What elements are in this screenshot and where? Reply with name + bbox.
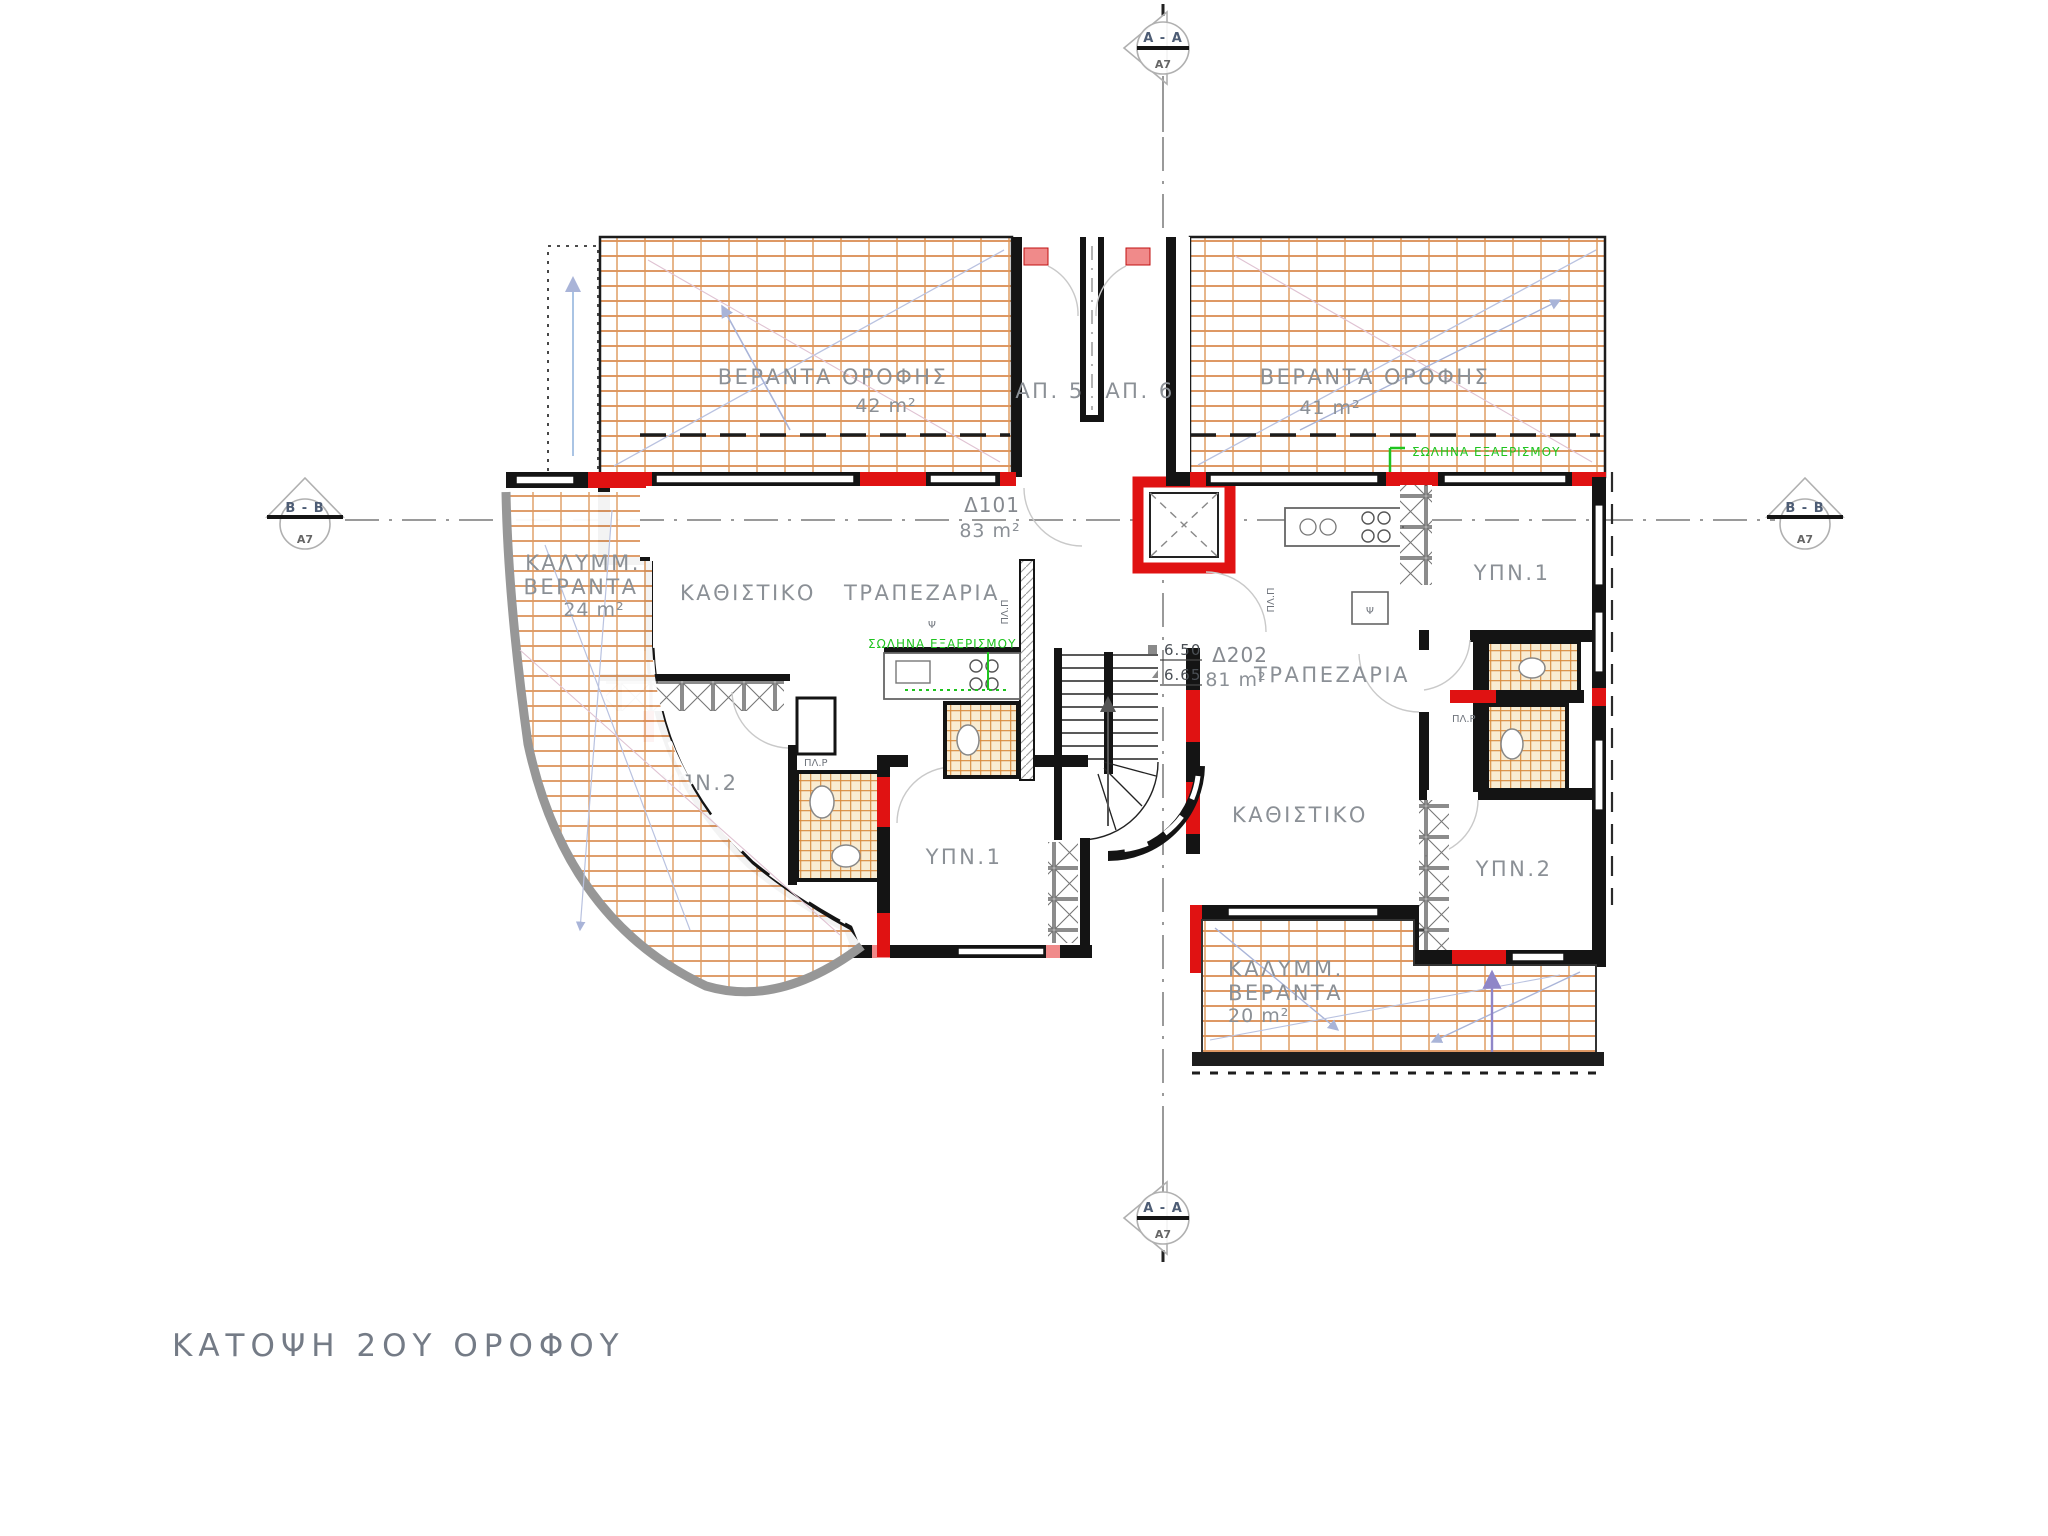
open-strip-dashed — [548, 246, 598, 475]
washing-machine-right-label: ΠΛ.Ρ — [1452, 714, 1476, 725]
covered-veranda-left-area: 24 m² — [563, 599, 624, 621]
d101-code: Δ101 — [964, 493, 1020, 517]
section-marker-aa-top: A - A A7 — [1124, 4, 1189, 132]
roof-veranda-right-label: ΒΕΡΑΝΤΑ ΟΡΟΦΗΣ — [1260, 365, 1491, 389]
d101-area: 83 m² — [959, 520, 1020, 542]
roof-veranda-right-area: 41 m² — [1299, 397, 1360, 419]
elevator-shaft — [1138, 482, 1230, 568]
washing-machine-left-label: ΠΛ.Ρ — [804, 758, 828, 769]
kitchen-d101: Ψ ΠΛ.Π ΣΩΛΗΝΑ ΕΞΑΕΡΙΣΜΟΥ — [868, 599, 1020, 699]
covered-veranda-left-line2: ΒΕΡΑΝΤΑ — [523, 575, 638, 599]
floor-plan-canvas: ΒΕΡΑΝΤΑ ΟΡΟΦΗΣ 42 m² ΒΕΡΑΝΤΑ ΟΡΟΦΗΣ 41 m… — [0, 0, 2048, 1536]
dishwasher-right-label: ΠΛ.Π — [1266, 587, 1277, 612]
d101-bedroom1-label: ΥΠΝ.1 — [925, 845, 1003, 869]
roof-veranda-right: ΒΕΡΑΝΤΑ ΟΡΟΦΗΣ 41 m² ΣΩΛΗΝΑ ΕΞΑΕΡΙΣΜΟΥ — [1190, 237, 1605, 480]
d101-dining-label: ΤΡΑΠΕΖΑΡΙΑ — [843, 581, 1000, 605]
entrance-ap5-label: ΑΠ. 5 — [1015, 379, 1084, 403]
dishwasher-left-label: ΠΛ.Π — [1000, 599, 1011, 624]
section-marker-aa-bottom: A - A A7 — [1124, 1130, 1189, 1262]
level-upper: 6.50 — [1164, 641, 1201, 659]
d202-living-label: ΚΑΘΙΣΤΙΚΟ — [1232, 803, 1368, 827]
section-bb-left-label: B - B — [285, 501, 324, 516]
entrance-corridors: ΑΠ. 5 ΑΠ. 6 — [1012, 237, 1190, 477]
section-bb-right-sheet: A7 — [1797, 533, 1813, 546]
covered-veranda-bottom-line1: ΚΑΛΥΜΜ. — [1228, 957, 1344, 981]
section-aa-bottom-label: A - A — [1143, 1201, 1183, 1216]
vent-pipe-left-label: ΣΩΛΗΝΑ ΕΞΑΕΡΙΣΜΟΥ — [868, 637, 1016, 651]
section-marker-bb-left: B - B A7 — [267, 478, 343, 549]
entrance-ap6-label: ΑΠ. 6 — [1105, 379, 1174, 403]
section-aa-top-sheet: A7 — [1155, 58, 1171, 71]
d202-dining-label: ΤΡΑΠΕΖΑΡΙΑ — [1253, 663, 1410, 687]
lintel-ap5 — [1024, 248, 1048, 265]
covered-veranda-bottom-line2: ΒΕΡΑΝΤΑ — [1228, 981, 1343, 1005]
section-aa-bottom-sheet: A7 — [1155, 1228, 1171, 1241]
kitchen-d202: Ψ ΠΛ.Π — [1266, 508, 1403, 624]
section-marker-bb-right: B - B A7 — [1767, 478, 1843, 549]
lintel-ap6 — [1126, 248, 1150, 265]
covered-veranda-bottom: ΚΑΛΥΜΜ. ΒΕΡΑΝΤΑ 20 m² — [1192, 920, 1604, 1073]
fridge-right-label: Ψ — [1366, 606, 1374, 617]
drawing-title: ΚΑΤΟΨΗ 2ΟΥ ΟΡΟΦΟΥ — [172, 1328, 625, 1364]
section-bb-right-label: B - B — [1785, 501, 1824, 516]
d202-bedroom1-label: ΥΠΝ.1 — [1473, 561, 1551, 585]
fridge-left-label: Ψ — [928, 620, 936, 631]
level-lower: 6.65 — [1164, 666, 1201, 684]
covered-veranda-left-line1: ΚΑΛΥΜΜ. — [525, 551, 641, 575]
roof-veranda-left-label: ΒΕΡΑΝΤΑ ΟΡΟΦΗΣ — [718, 365, 949, 389]
roof-veranda-left-area: 42 m² — [855, 395, 916, 417]
vent-pipe-right-label: ΣΩΛΗΝΑ ΕΞΑΕΡΙΣΜΟΥ — [1412, 445, 1560, 459]
roof-veranda-left: ΒΕΡΑΝΤΑ ΟΡΟΦΗΣ 42 m² — [600, 237, 1012, 480]
covered-veranda-bottom-area: 20 m² — [1228, 1005, 1289, 1027]
section-bb-left-sheet: A7 — [297, 533, 313, 546]
section-aa-top-label: A - A — [1143, 31, 1183, 46]
d202-bedroom2-label: ΥΠΝ.2 — [1475, 857, 1553, 881]
d101-living-label: ΚΑΘΙΣΤΙΚΟ — [680, 581, 816, 605]
